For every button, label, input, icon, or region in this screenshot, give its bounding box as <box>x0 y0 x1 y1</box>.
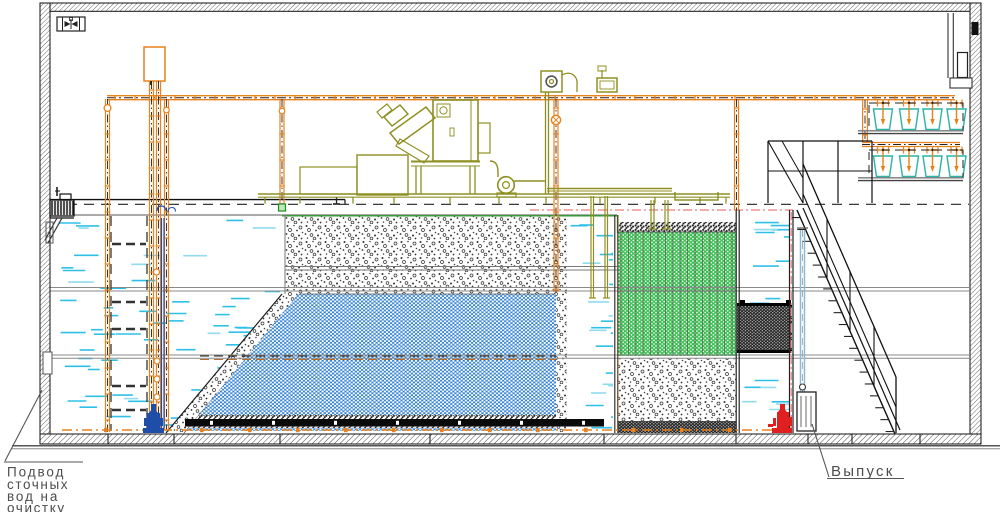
svg-text:очистку: очистку <box>7 501 66 512</box>
svg-text:Выпуск: Выпуск <box>831 463 895 480</box>
